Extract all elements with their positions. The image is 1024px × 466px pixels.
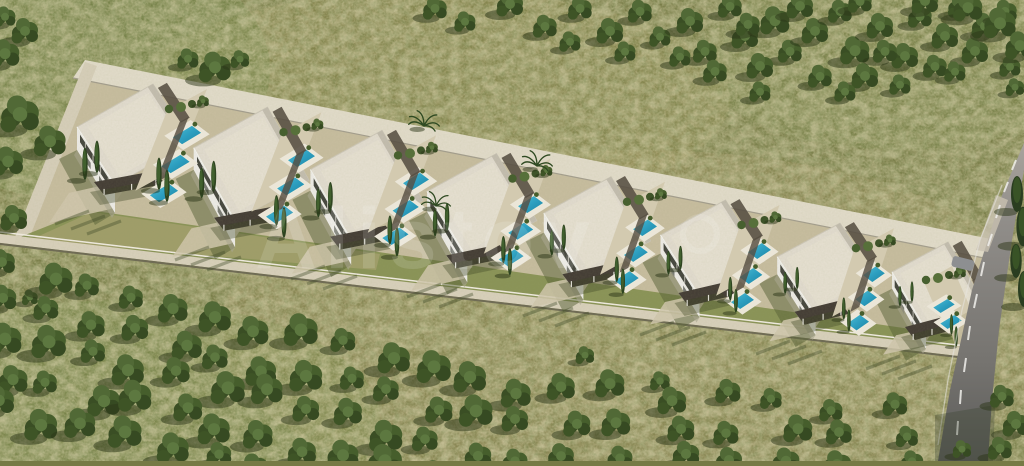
svg-text:Alistov: Alistov (255, 191, 598, 287)
